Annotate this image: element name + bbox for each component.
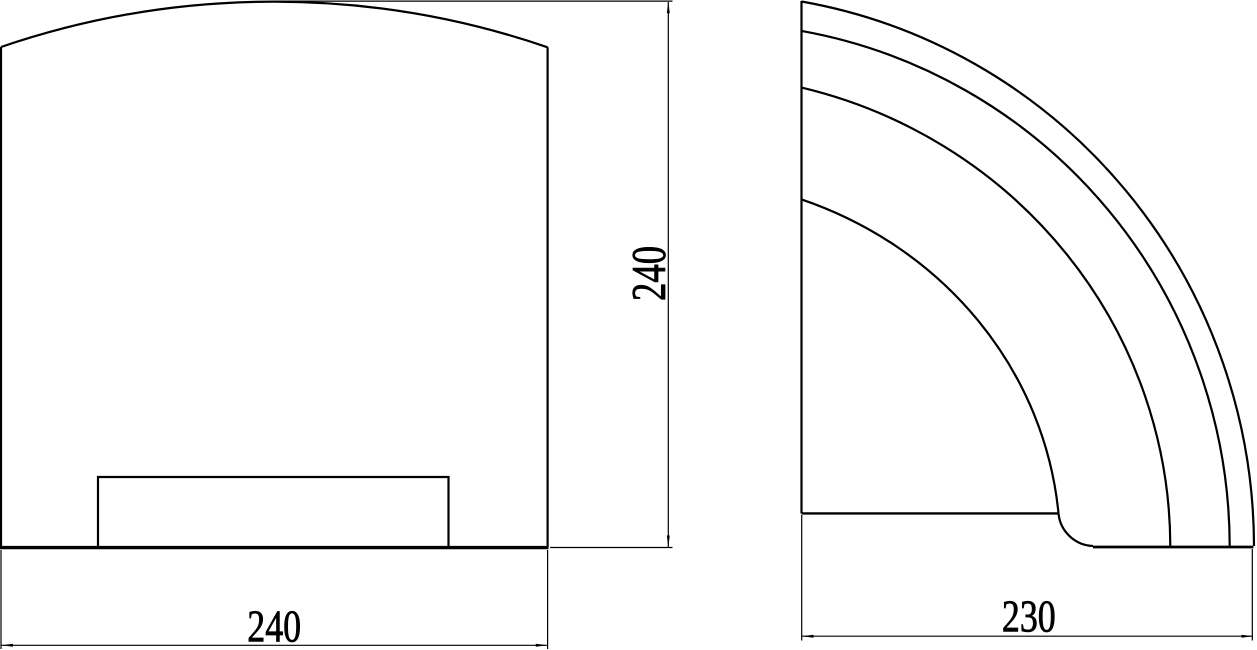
- svg-text:240: 240: [247, 600, 301, 650]
- svg-text:240: 240: [622, 246, 676, 301]
- svg-text:230: 230: [1002, 590, 1056, 641]
